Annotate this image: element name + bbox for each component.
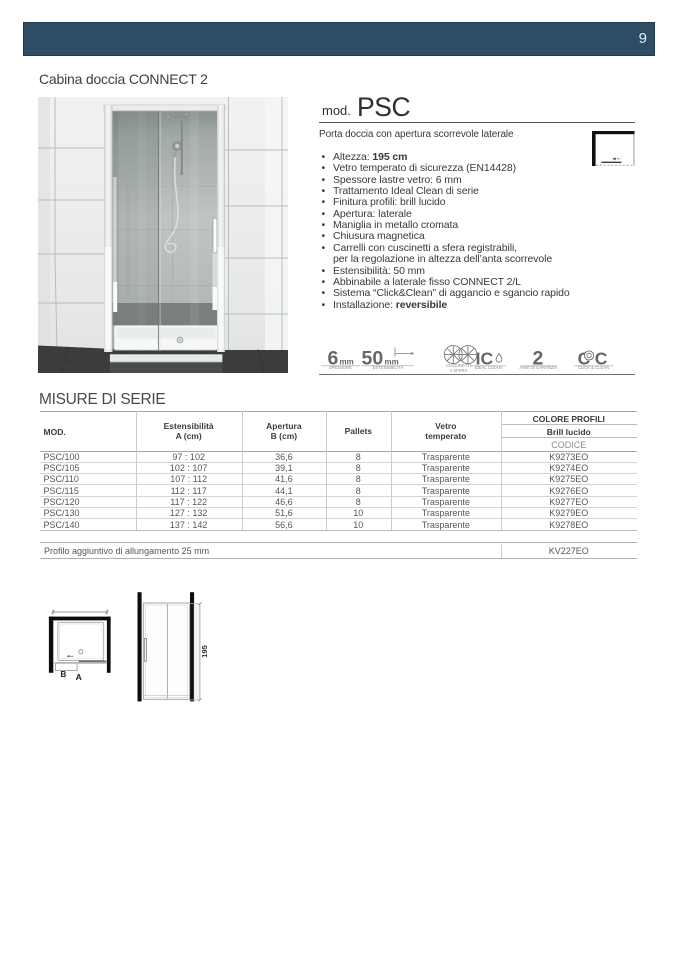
- svg-text:A: A: [76, 672, 82, 682]
- svg-text:195: 195: [200, 644, 209, 657]
- svg-text:IDEAL CLEAN: IDEAL CLEAN: [475, 365, 502, 370]
- svg-text:ESTENSIBILITÀ: ESTENSIBILITÀ: [373, 365, 404, 370]
- svg-text:ANNI DI GARANZIA: ANNI DI GARANZIA: [520, 365, 558, 370]
- svg-text:CLICK & CLEAN: CLICK & CLEAN: [578, 365, 609, 370]
- svg-text:A SFERA: A SFERA: [450, 368, 468, 373]
- svg-text:B: B: [61, 670, 67, 679]
- svg-text:SPESSORE: SPESSORE: [329, 365, 352, 370]
